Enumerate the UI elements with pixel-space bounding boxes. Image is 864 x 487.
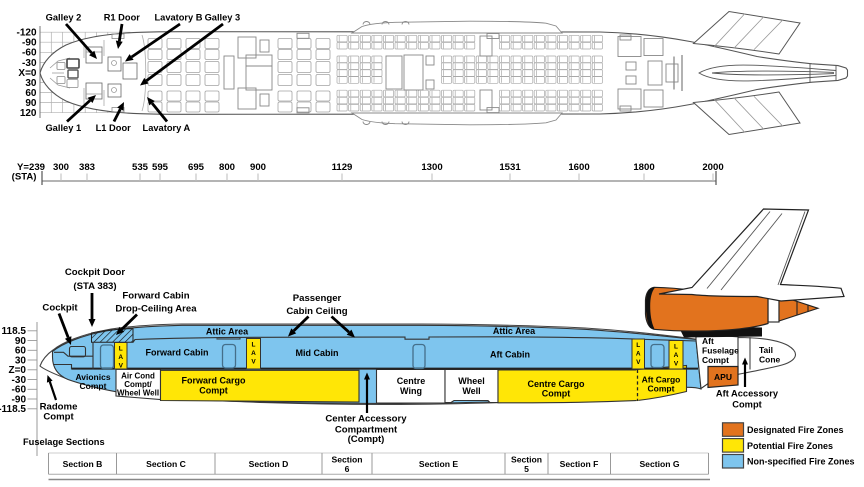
svg-text:Forward Cabin: Forward Cabin (122, 291, 189, 302)
svg-text:Center Accessory: Center Accessory (325, 414, 407, 425)
svg-text:Compt: Compt (702, 355, 729, 365)
svg-text:383: 383 (79, 162, 95, 173)
svg-text:L1 Door: L1 Door (96, 123, 132, 133)
svg-text:Aft: Aft (702, 336, 714, 346)
svg-text:695: 695 (188, 162, 205, 173)
svg-text:L: L (636, 342, 640, 349)
svg-text:Section G: Section G (639, 459, 679, 469)
svg-text:Compt: Compt (732, 400, 761, 410)
svg-text:Lavatory B: Lavatory B (154, 13, 202, 23)
svg-text:Mid Cabin: Mid Cabin (296, 348, 339, 358)
svg-text:A: A (674, 352, 679, 359)
svg-text:Aft Accessory: Aft Accessory (716, 389, 779, 399)
svg-text:1129: 1129 (332, 162, 353, 173)
svg-text:Designated Fire Zones: Designated Fire Zones (747, 425, 844, 435)
svg-text:Section B: Section B (63, 459, 103, 469)
svg-text:Centre: Centre (397, 376, 426, 386)
svg-text:Galley 2: Galley 2 (46, 13, 82, 23)
svg-text:900: 900 (250, 162, 266, 173)
svg-text:Drop-Ceiling Area: Drop-Ceiling Area (115, 304, 197, 315)
svg-text:A: A (636, 350, 641, 357)
svg-text:2000: 2000 (702, 162, 723, 173)
svg-text:(STA): (STA) (12, 171, 37, 182)
svg-text:Compt: Compt (43, 412, 74, 423)
svg-text:L: L (119, 345, 123, 352)
svg-text:Galley 1: Galley 1 (45, 123, 81, 133)
svg-text:Fuselage Sections: Fuselage Sections (23, 437, 105, 447)
svg-text:Lavatory A: Lavatory A (143, 123, 191, 133)
svg-text:Forward Cabin: Forward Cabin (145, 348, 208, 358)
svg-text:Compt: Compt (648, 384, 675, 394)
svg-text:1800: 1800 (633, 162, 654, 173)
svg-text:Potential Fire Zones: Potential Fire Zones (747, 441, 833, 451)
svg-text:Cockpit: Cockpit (42, 303, 78, 314)
svg-text:Compt: Compt (199, 386, 228, 396)
svg-text:Centre Cargo: Centre Cargo (527, 379, 585, 389)
svg-text:1531: 1531 (499, 162, 521, 173)
svg-text:Cockpit Door: Cockpit Door (65, 267, 125, 278)
svg-text:V: V (636, 359, 641, 366)
svg-text:595: 595 (152, 162, 169, 173)
svg-text:Section C: Section C (146, 459, 186, 469)
svg-text:535: 535 (132, 162, 149, 173)
svg-text:Non-specified Fire Zones: Non-specified Fire Zones (747, 457, 855, 467)
svg-text:1300: 1300 (421, 162, 442, 173)
svg-text:6: 6 (345, 464, 350, 474)
svg-text:(Compt): (Compt) (348, 434, 385, 445)
svg-text:Aft Cabin: Aft Cabin (490, 350, 530, 360)
svg-text:Cabin Ceiling: Cabin Ceiling (286, 306, 347, 317)
svg-text:Section F: Section F (560, 459, 599, 469)
svg-text:L: L (252, 341, 256, 348)
svg-text:R1 Door: R1 Door (104, 13, 141, 23)
svg-text:Section D: Section D (249, 459, 289, 469)
svg-text:Attic Area: Attic Area (493, 326, 536, 336)
svg-text:Compt: Compt (80, 381, 107, 391)
svg-text:120: 120 (20, 108, 37, 119)
svg-text:Section E: Section E (419, 459, 458, 469)
svg-text:V: V (119, 363, 124, 370)
svg-text:Wing: Wing (400, 386, 422, 396)
svg-text:V: V (674, 361, 679, 368)
svg-text:1600: 1600 (568, 162, 589, 173)
svg-text:5: 5 (524, 464, 529, 474)
svg-text:V: V (251, 359, 256, 366)
svg-text:Cone: Cone (759, 355, 781, 365)
svg-text:-118.5: -118.5 (0, 404, 26, 415)
svg-text:APU: APU (714, 372, 732, 382)
svg-text:Passenger: Passenger (293, 293, 342, 304)
svg-text:300: 300 (53, 162, 69, 173)
svg-text:Tail: Tail (759, 345, 773, 355)
svg-text:Wheel Well: Wheel Well (117, 389, 159, 398)
svg-text:Forward Cargo: Forward Cargo (181, 376, 246, 386)
svg-text:Well: Well (462, 386, 480, 396)
svg-text:A: A (118, 354, 123, 361)
svg-text:(STA 383): (STA 383) (73, 281, 116, 292)
svg-text:Wheel: Wheel (458, 376, 485, 386)
svg-text:Galley 3: Galley 3 (205, 13, 241, 23)
svg-text:800: 800 (219, 162, 235, 173)
svg-text:Fuselage: Fuselage (702, 346, 739, 356)
svg-text:Attic Area: Attic Area (206, 327, 249, 337)
svg-text:L: L (674, 343, 678, 350)
svg-text:A: A (251, 350, 256, 357)
svg-text:Compt: Compt (542, 389, 571, 399)
